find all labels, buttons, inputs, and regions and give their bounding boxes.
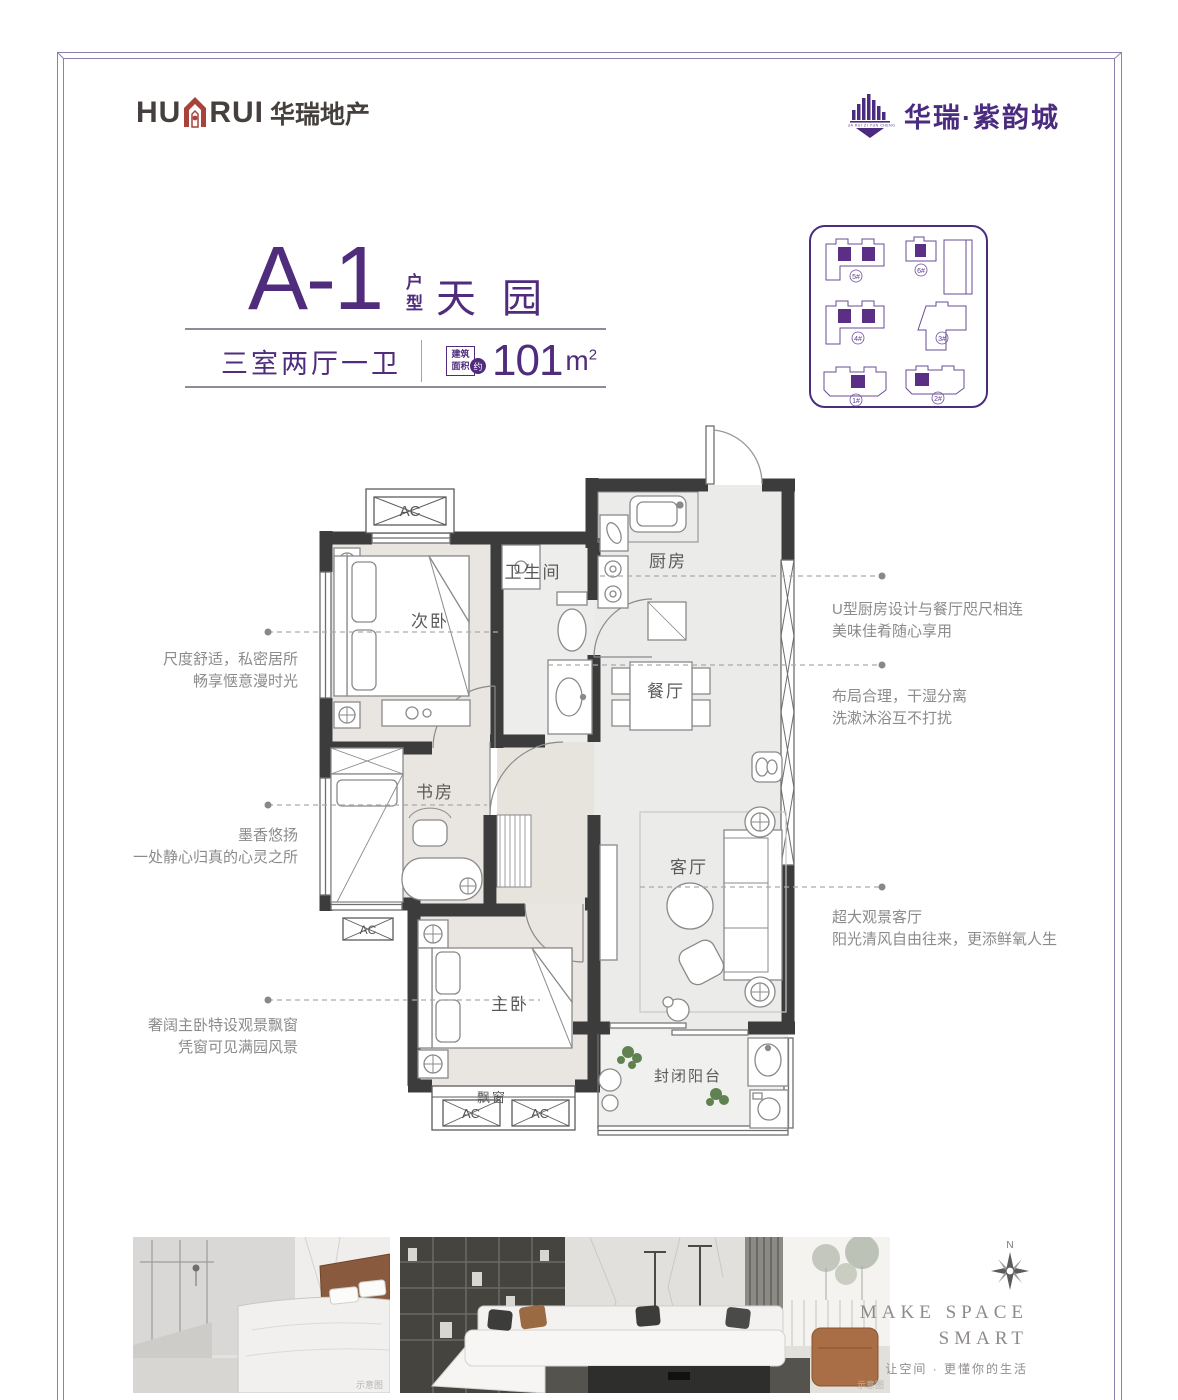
annotation-line: 一处静心归真的心灵之所 bbox=[70, 847, 298, 869]
unit-code: A-1 bbox=[248, 234, 382, 324]
annotation-line: 阳光清风自由往来，更添鲜氧人生 bbox=[832, 929, 1092, 951]
annotation-line: 超大观景客厅 bbox=[832, 907, 1092, 929]
render-caption-right: 示意图 bbox=[857, 1379, 884, 1390]
ac-label-top: AC bbox=[400, 503, 421, 520]
annotation-line: 美味佳肴随心享用 bbox=[832, 621, 1082, 643]
building-label-6: 6# bbox=[917, 268, 925, 275]
unit-type-char-top: 户 bbox=[406, 272, 423, 293]
annotation-line: 布局合理，干湿分离 bbox=[832, 686, 1082, 708]
ziyuncheng-building-icon: HUA RUI ZI YUN CHENG bbox=[848, 92, 896, 138]
ac-label-bay-1: AC bbox=[462, 1106, 480, 1121]
annotation-line: 凭窗可见满园风景 bbox=[90, 1037, 298, 1059]
unit-spec-row: 三室两厅一卫 建筑 面积 约 101 m2 bbox=[185, 336, 606, 386]
huarui-logo-text-cn: 华瑞地产 bbox=[270, 102, 370, 128]
unit-type-label: 户 型 bbox=[406, 272, 423, 315]
huarui-logo-text-prefix: HU bbox=[136, 98, 181, 128]
room-layout-spec: 三室两厅一卫 bbox=[221, 342, 401, 381]
room-label-secondary-bedroom: 次卧 bbox=[411, 612, 449, 631]
area-unit-m: m bbox=[565, 345, 588, 376]
annotation-secondary-bedroom: 尺度舒适，私密居所 畅享惬意漫时光 bbox=[90, 649, 298, 693]
area-badge-bottom: 面积 bbox=[451, 361, 469, 373]
room-label-bathroom: 卫生间 bbox=[505, 563, 562, 582]
building-label-3: 3# bbox=[938, 336, 946, 343]
ziyuncheng-logo-tagline: HUA RUI ZI YUN CHENG bbox=[848, 124, 895, 128]
title-divider-bottom bbox=[185, 386, 606, 388]
site-plan: 5# 6# 4# 3# 1# 2# bbox=[810, 226, 987, 407]
ac-label-study: AC bbox=[360, 923, 377, 937]
unit-type-char-bottom: 型 bbox=[406, 293, 423, 314]
building-label-4: 4# bbox=[854, 336, 862, 343]
annotation-line: U型厨房设计与餐厅咫尺相连 bbox=[832, 599, 1082, 621]
slogan-cn: 让空间 · 更懂你的生活 bbox=[828, 1360, 1028, 1377]
bedroom-render-image: 示意图 bbox=[133, 1237, 390, 1393]
annotation-living-room: 超大观景客厅 阳光清风自由往来，更添鲜氧人生 bbox=[832, 907, 1092, 951]
ziyuncheng-logo-text: 华瑞·紫韵城 bbox=[904, 96, 1060, 135]
slogan-en-line2: SMART bbox=[828, 1326, 1028, 1352]
annotation-bathroom: 布局合理，干湿分离 洗漱沐浴互不打扰 bbox=[832, 686, 1082, 730]
annotation-line: 畅享惬意漫时光 bbox=[90, 671, 298, 693]
room-label-kitchen: 厨房 bbox=[649, 552, 687, 571]
footer-slogan: MAKE SPACE SMART 让空间 · 更懂你的生活 bbox=[828, 1300, 1028, 1377]
annotation-master-bedroom: 奢阔主卧特设观景飘窗 凭窗可见满园风景 bbox=[90, 1015, 298, 1059]
room-label-master-bedroom: 主卧 bbox=[491, 995, 529, 1014]
annotation-line: 墨香悠扬 bbox=[70, 825, 298, 847]
annotation-line: 洗漱沐浴互不打扰 bbox=[832, 708, 1082, 730]
compass-north-label: N bbox=[1006, 1240, 1013, 1251]
huarui-logo: HU RUI 华瑞地产 bbox=[136, 96, 370, 128]
building-label-2: 2# bbox=[934, 396, 942, 403]
floor-area-badge: 建筑 面积 约 bbox=[446, 346, 486, 376]
room-label-balcony: 封闭阳台 bbox=[654, 1068, 722, 1085]
area-approx-mark: 约 bbox=[470, 358, 486, 374]
annotation-study: 墨香悠扬 一处静心归真的心灵之所 bbox=[70, 825, 298, 869]
building-label-5: 5# bbox=[852, 274, 860, 281]
compass-icon: N bbox=[991, 1240, 1029, 1290]
living-room-render-image: 示意图 bbox=[400, 1235, 890, 1393]
building-label-1: 1# bbox=[852, 398, 860, 405]
title-divider-top bbox=[185, 328, 606, 330]
room-label-dining: 餐厅 bbox=[647, 682, 685, 701]
area-value: 101 bbox=[492, 336, 562, 386]
area-unit: m2 bbox=[565, 345, 597, 377]
huarui-house-icon bbox=[182, 96, 208, 128]
area-unit-exponent: 2 bbox=[589, 347, 597, 364]
annotation-kitchen: U型厨房设计与餐厅咫尺相连 美味佳肴随心享用 bbox=[832, 599, 1082, 643]
room-label-living: 客厅 bbox=[670, 858, 708, 877]
floorplan-poster: 5# 6# 4# 3# 1# 2# bbox=[0, 0, 1178, 1400]
huarui-logo-text-suffix: RUI bbox=[209, 98, 264, 128]
area-badge-top: 建筑 bbox=[451, 349, 469, 361]
bay-window-label: 飘窗 bbox=[477, 1090, 507, 1105]
room-label-study: 书房 bbox=[416, 783, 454, 802]
annotation-line: 奢阔主卧特设观景飘窗 bbox=[90, 1015, 298, 1037]
ac-label-bay-2: AC bbox=[531, 1106, 549, 1121]
unit-name: 天园 bbox=[436, 266, 568, 324]
floor-plan: AC bbox=[265, 426, 886, 1135]
slogan-en-line1: MAKE SPACE bbox=[828, 1300, 1028, 1326]
ziyuncheng-logo: HUA RUI ZI YUN CHENG 华瑞·紫韵城 bbox=[848, 92, 1060, 138]
render-caption-left: 示意图 bbox=[356, 1379, 383, 1390]
annotation-line: 尺度舒适，私密居所 bbox=[90, 649, 298, 671]
spec-divider bbox=[421, 340, 422, 382]
